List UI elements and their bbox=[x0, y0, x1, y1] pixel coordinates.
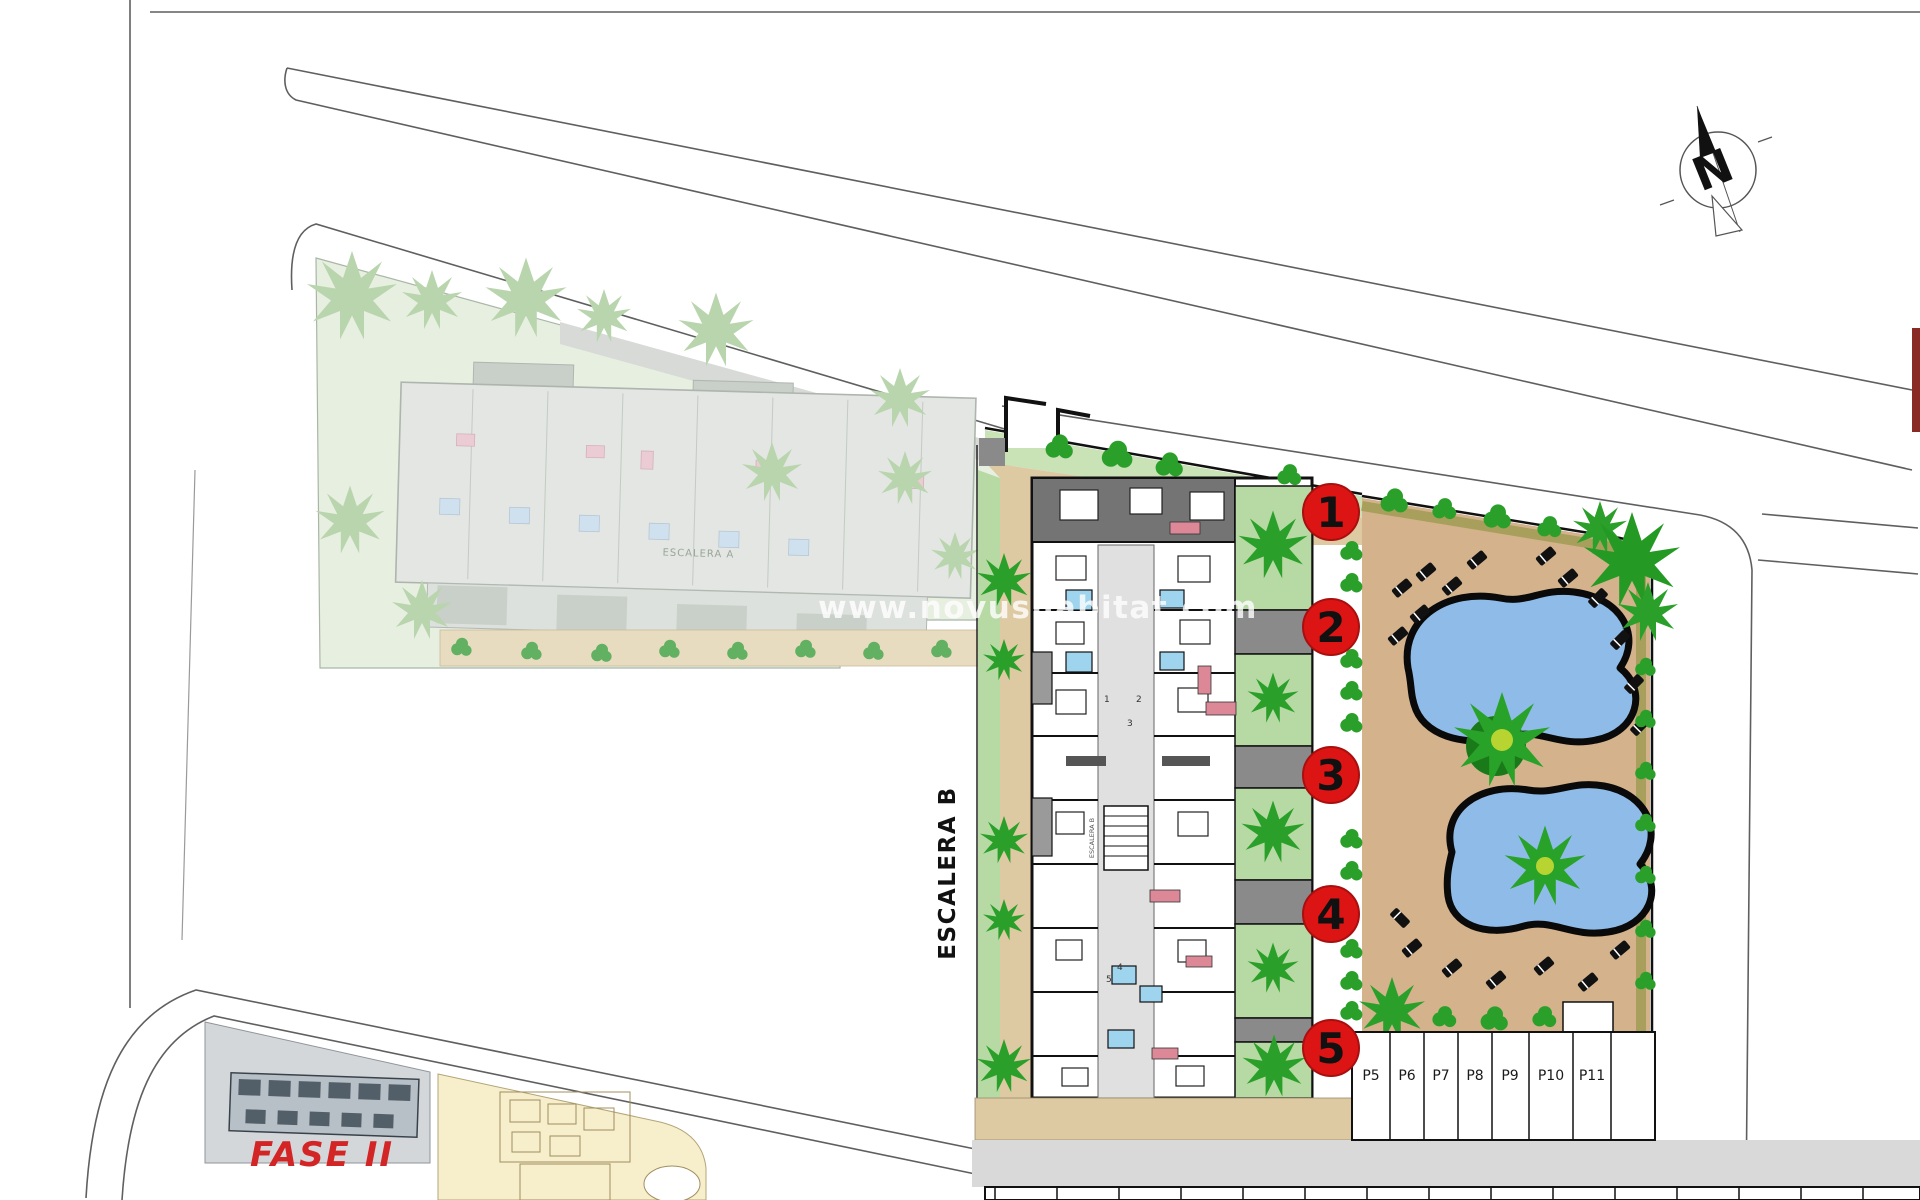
unit-marker-1: 1 bbox=[1303, 484, 1359, 540]
unit-number: 4 bbox=[1117, 963, 1123, 973]
unit-marker-number: 1 bbox=[1316, 488, 1345, 537]
south-road bbox=[972, 1140, 1920, 1187]
pool-area bbox=[1359, 488, 1680, 1042]
site-plan-drawing: ESCALERA A bbox=[0, 0, 1920, 1200]
unit-marker-2: 2 bbox=[1303, 599, 1359, 655]
main-building: 1 2 3 4 5 ESCALERA B bbox=[1032, 478, 1312, 1098]
south-walkway bbox=[975, 1098, 1355, 1140]
parking-space-label: P8 bbox=[1466, 1068, 1483, 1084]
unit-number: 1 bbox=[1104, 695, 1110, 705]
watermark: www.novushabitat.com bbox=[818, 590, 1258, 626]
unit-marker-5: 5 bbox=[1303, 1020, 1359, 1076]
unit-number: 2 bbox=[1136, 695, 1142, 705]
parking-row-east: P5 P6 P7 P8 P9 P10 P11 bbox=[1352, 1032, 1655, 1140]
parking-space-label: P7 bbox=[1432, 1068, 1449, 1084]
unit-number: 3 bbox=[1127, 719, 1133, 729]
unit-marker-number: 2 bbox=[1316, 603, 1345, 652]
unit-marker-number: 4 bbox=[1316, 890, 1345, 939]
parking-space-label: P5 bbox=[1362, 1068, 1379, 1084]
parking-space-label: P9 bbox=[1501, 1068, 1518, 1084]
scan-artifact bbox=[1912, 328, 1920, 432]
unit-marker-3: 3 bbox=[1303, 747, 1359, 803]
north-compass: N bbox=[1660, 106, 1772, 236]
parking-space-label: P10 bbox=[1538, 1068, 1564, 1084]
site-plan-canvas: ESCALERA A bbox=[0, 0, 1920, 1200]
phase2-area: FASE II bbox=[205, 1022, 706, 1200]
phase2-label: FASE II bbox=[250, 1135, 394, 1175]
private-gardens bbox=[1235, 486, 1312, 1098]
escalera-b-core-label: ESCALERA B bbox=[1088, 818, 1096, 858]
parking-row-south bbox=[985, 1187, 1920, 1200]
escalera-a-label: ESCALERA A bbox=[662, 548, 734, 561]
new-site: 1 2 3 4 5 ESCALERA B bbox=[972, 392, 1920, 1200]
unit-marker-4: 4 bbox=[1303, 886, 1359, 942]
unit-number: 5 bbox=[1106, 975, 1112, 985]
unit-marker-number: 3 bbox=[1316, 751, 1345, 800]
escalera-b-label: ESCALERA B bbox=[935, 786, 961, 959]
parking-space-label: P6 bbox=[1398, 1068, 1415, 1084]
phase2-mini-building bbox=[229, 1073, 419, 1138]
pool-utility-box bbox=[1563, 1002, 1613, 1032]
north-label: N bbox=[1685, 138, 1741, 202]
unit-marker-number: 5 bbox=[1316, 1024, 1345, 1073]
parking-space-label: P11 bbox=[1579, 1068, 1605, 1084]
